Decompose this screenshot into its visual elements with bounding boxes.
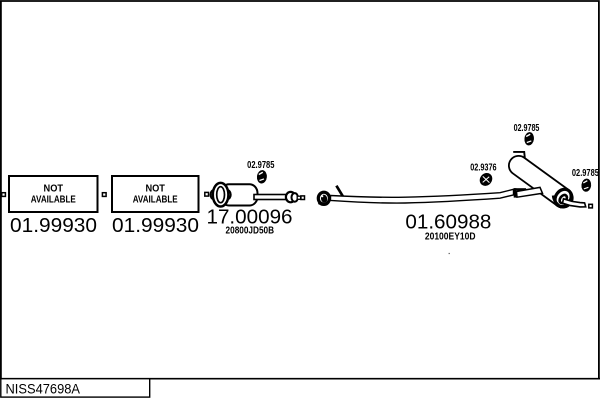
svg-text:20100EY10D: 20100EY10D xyxy=(425,232,476,243)
svg-text:02.9785: 02.9785 xyxy=(572,167,599,179)
svg-text:02.9785: 02.9785 xyxy=(514,122,540,134)
svg-text:01.60988: 01.60988 xyxy=(405,212,491,234)
svg-text:01.99930: 01.99930 xyxy=(10,215,97,237)
svg-text:01.99930: 01.99930 xyxy=(112,215,199,237)
svg-text:02.9785: 02.9785 xyxy=(247,159,274,171)
svg-text:NOT: NOT xyxy=(44,184,64,195)
svg-text:20800JD50B: 20800JD50B xyxy=(226,226,275,237)
svg-text:AVAILABLE: AVAILABLE xyxy=(133,195,178,206)
svg-text:NISS47698A: NISS47698A xyxy=(6,380,81,396)
svg-text:NOT: NOT xyxy=(145,184,165,195)
svg-text:02.9376: 02.9376 xyxy=(470,162,496,174)
svg-text:AVAILABLE: AVAILABLE xyxy=(31,195,76,206)
